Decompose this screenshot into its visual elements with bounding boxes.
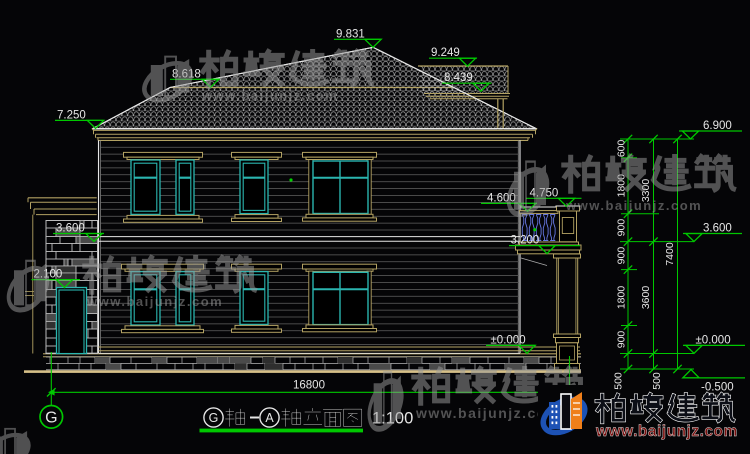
svg-text:9.249: 9.249 [431, 47, 460, 59]
svg-text:3.600: 3.600 [703, 223, 732, 235]
svg-text:600: 600 [616, 139, 628, 157]
svg-text:www.baijunjz.com: www.baijunjz.com [201, 88, 338, 103]
svg-text:±0.000: ±0.000 [696, 334, 731, 346]
svg-text:www.baijunjz.com: www.baijunjz.com [595, 423, 738, 440]
svg-text:3.600: 3.600 [56, 223, 85, 235]
svg-text:16800: 16800 [293, 380, 325, 392]
svg-text:3600: 3600 [640, 286, 652, 310]
svg-text:7400: 7400 [664, 242, 676, 266]
svg-text:9.831: 9.831 [336, 28, 365, 40]
svg-text:G: G [45, 410, 57, 427]
svg-text:6.900: 6.900 [703, 120, 732, 132]
svg-text:www.baijunjz.com: www.baijunjz.com [565, 198, 702, 213]
svg-text:3.200: 3.200 [511, 235, 540, 247]
svg-text:500: 500 [651, 372, 663, 390]
svg-text:www.baijunjz.com: www.baijunjz.com [86, 294, 223, 309]
svg-text:7.250: 7.250 [57, 109, 86, 121]
svg-text:A: A [265, 411, 274, 425]
svg-text:1800: 1800 [616, 286, 628, 310]
svg-text:900: 900 [616, 219, 628, 237]
svg-text:500: 500 [613, 372, 625, 390]
svg-text:900: 900 [616, 247, 628, 265]
svg-text:±0.000: ±0.000 [491, 334, 526, 346]
svg-text:8.439: 8.439 [444, 72, 473, 84]
svg-text:G: G [209, 411, 219, 425]
svg-text:900: 900 [616, 331, 628, 349]
svg-text:-0.500: -0.500 [701, 381, 734, 393]
